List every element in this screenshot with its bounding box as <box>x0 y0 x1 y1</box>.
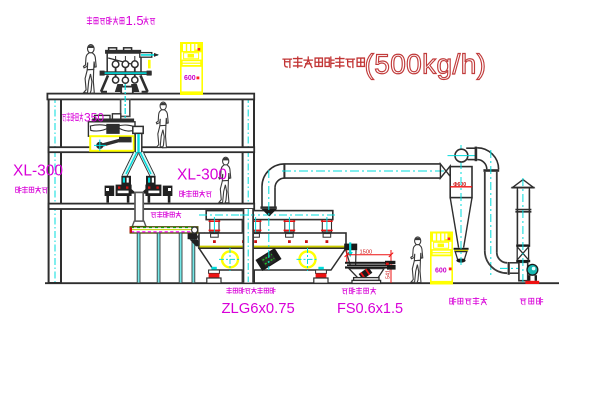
svg-text:Φ600: Φ600 <box>453 182 466 188</box>
svg-text:600: 600 <box>184 75 196 82</box>
svg-text:ZLG6x0.75: ZLG6x0.75 <box>222 301 295 317</box>
svg-text:600: 600 <box>435 268 447 275</box>
svg-text:541: 541 <box>386 270 392 279</box>
svg-text:XL-300: XL-300 <box>177 167 227 184</box>
svg-text:1500: 1500 <box>360 249 373 255</box>
svg-text:XL-300: XL-300 <box>13 163 63 180</box>
svg-text:1.5: 1.5 <box>126 13 144 28</box>
svg-text:FS0.6x1.5: FS0.6x1.5 <box>337 301 403 317</box>
svg-text:(500kg/h): (500kg/h) <box>365 49 487 80</box>
svg-text:350: 350 <box>84 111 104 125</box>
